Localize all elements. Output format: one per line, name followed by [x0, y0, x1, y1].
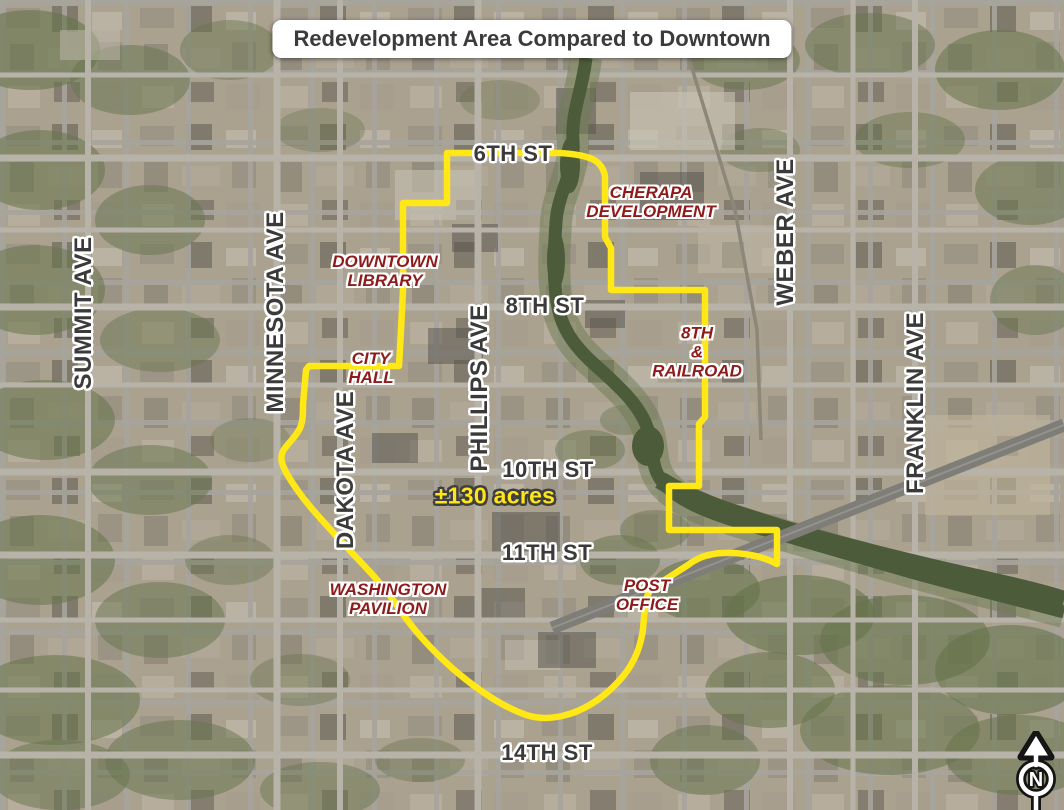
avenue-label-weber-ave: WEBER AVE [772, 158, 800, 305]
landmark-line: & [652, 342, 742, 361]
map-page: Redevelopment Area Compared to Downtown … [0, 0, 1064, 810]
north-arrow-icon: N [1006, 731, 1064, 810]
street-label-11th-st: 11TH ST [502, 540, 592, 566]
landmark-label-cherapa-development: CHERAPA DEVELOPMENT [586, 183, 715, 221]
avenue-label-franklin-ave: FRANKLIN AVE [902, 312, 930, 494]
landmark-line: LIBRARY [332, 271, 437, 290]
avenue-label-phillips-ave: PHILLIPS AVE [466, 304, 494, 471]
landmark-line: RAILROAD [652, 362, 742, 381]
landmark-line: CITY [348, 349, 393, 368]
street-label-14th-st: 14TH ST [501, 740, 593, 766]
landmark-line: 8TH [652, 323, 742, 342]
avenue-label-minnesota-ave: MINNESOTA AVE [262, 211, 290, 412]
landmark-line: CHERAPA [586, 183, 715, 202]
street-label-10th-st: 10TH ST [502, 457, 594, 483]
area-measurement-label: ±130 acres [435, 483, 556, 510]
landmark-label-washington-pavilion: WASHINGTON PAVILION [330, 580, 447, 618]
landmark-line: WASHINGTON [330, 580, 447, 599]
street-label-8th-st: 8TH ST [506, 293, 585, 319]
avenue-label-dakota-ave: DAKOTA AVE [332, 391, 360, 549]
map-title: Redevelopment Area Compared to Downtown [272, 20, 791, 58]
landmark-label-8th-and-railroad: 8TH & RAILROAD [652, 323, 742, 380]
street-label-6th-st: 6TH ST [474, 141, 553, 167]
landmark-line: DOWNTOWN [332, 252, 437, 271]
north-letter: N [1029, 769, 1043, 791]
landmark-line: OFFICE [616, 595, 678, 614]
landmark-line: HALL [348, 368, 393, 387]
landmark-line: PAVILION [330, 599, 447, 618]
landmark-line: DEVELOPMENT [586, 202, 715, 221]
landmark-label-city-hall: CITY HALL [348, 349, 393, 387]
landmark-label-downtown-library: DOWNTOWN LIBRARY [332, 252, 437, 290]
landmark-label-post-office: POST OFFICE [616, 576, 678, 614]
avenue-label-summit-ave: SUMMIT AVE [70, 237, 98, 390]
landmark-line: POST [616, 576, 678, 595]
